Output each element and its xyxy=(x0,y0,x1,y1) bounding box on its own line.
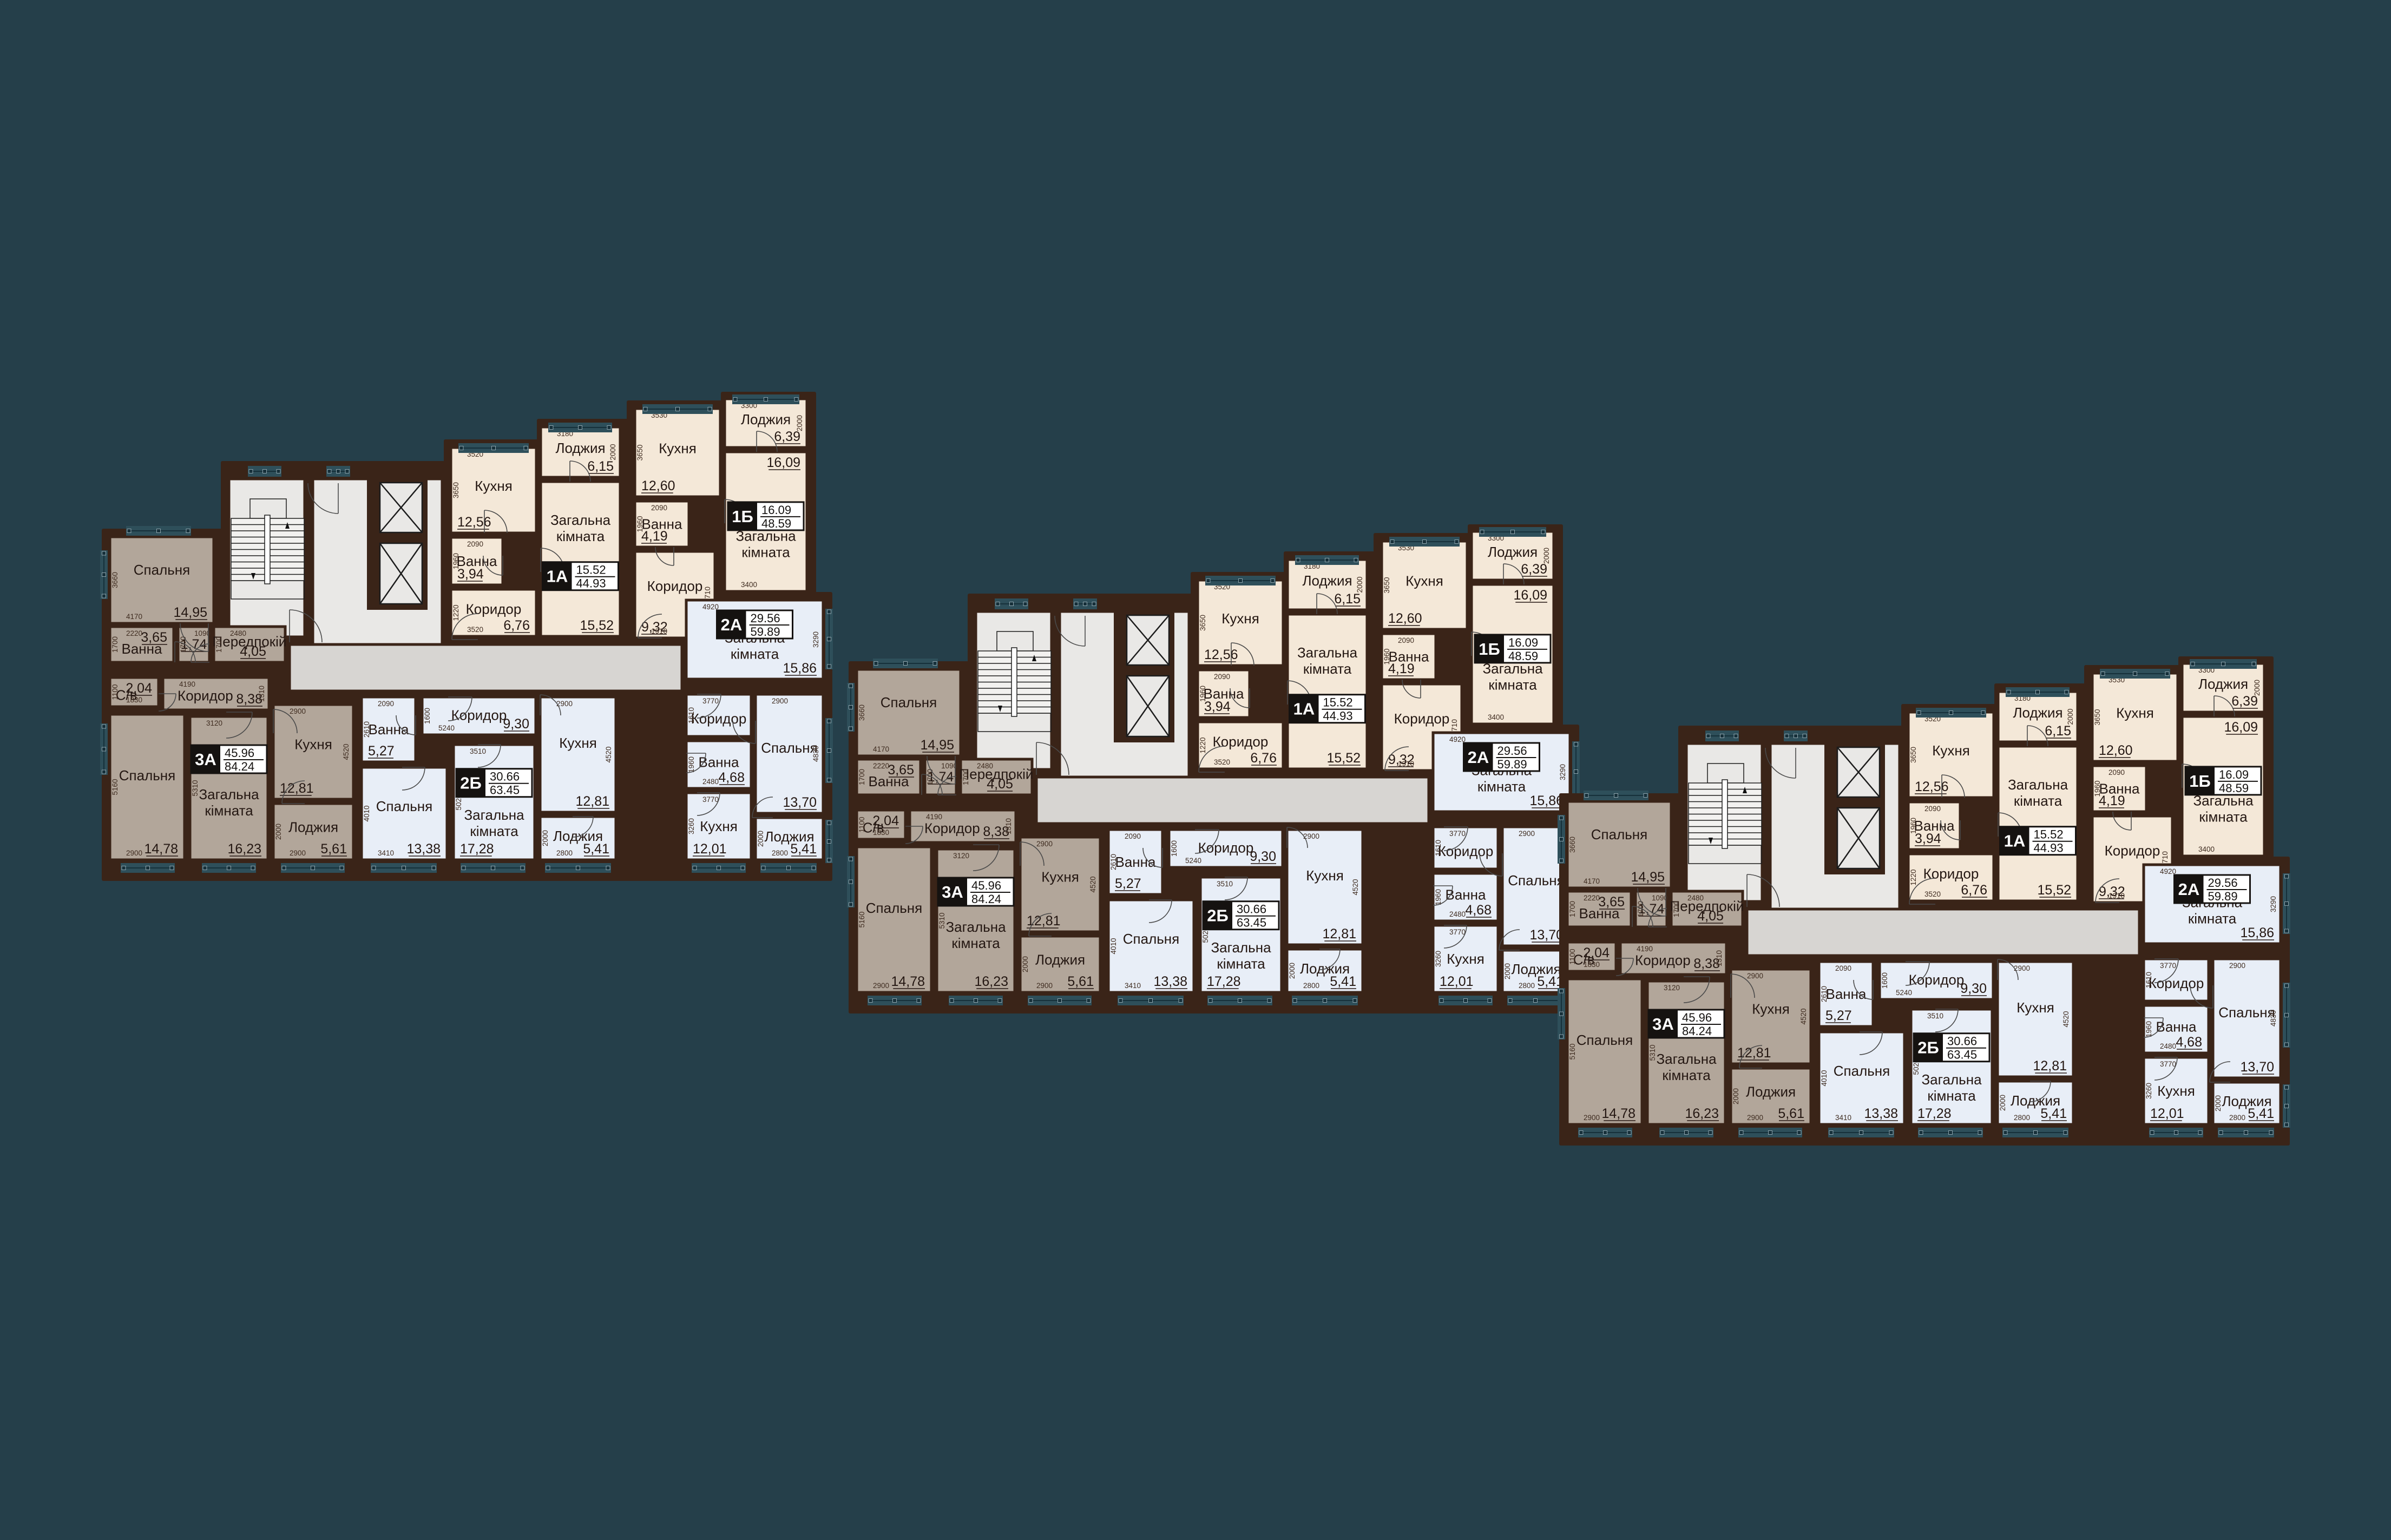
room-area: 12,56 xyxy=(457,515,491,530)
dimension-label: 2090 xyxy=(2108,768,2125,776)
window-post xyxy=(1534,999,1538,1003)
window-post xyxy=(402,866,406,870)
window-post xyxy=(1978,1131,1982,1135)
dimension-label: 3770 xyxy=(1449,830,1466,838)
window-post xyxy=(1585,794,1588,798)
room-label: Спальня xyxy=(1834,1063,1890,1079)
window-post xyxy=(521,866,524,870)
window-post xyxy=(849,903,853,906)
dimension-label: 3120 xyxy=(953,852,969,860)
room-label: Коридор xyxy=(691,710,747,727)
badge-total-area: 63.45 xyxy=(1237,916,1266,930)
dimension-label: 3120 xyxy=(206,719,222,727)
window-post xyxy=(102,770,106,774)
dimension-label: 2000 xyxy=(2214,1095,2222,1111)
room-label: Спальня xyxy=(761,740,817,756)
apartment-badge-1А: 1А15.5244.93 xyxy=(1290,695,1365,723)
room-label: Лоджия xyxy=(2013,705,2062,721)
window-post xyxy=(1541,530,1545,534)
window-post xyxy=(1981,711,1985,715)
room-label: Коридор xyxy=(1438,843,1494,859)
room-label: Коридор xyxy=(1909,972,1965,988)
window-post xyxy=(372,866,376,870)
room-area: 2,04 xyxy=(126,681,152,696)
window-post xyxy=(282,866,286,870)
room-area: 12,81 xyxy=(2033,1058,2067,1074)
room-area: 16,09 xyxy=(2224,720,2258,735)
room-area: 4,05 xyxy=(1697,909,1724,924)
window-post xyxy=(2222,662,2225,666)
dimension-label: 2090 xyxy=(467,540,483,548)
dimension-label: 4520 xyxy=(1351,879,1359,895)
window-post xyxy=(2219,1131,2223,1135)
room-label: кімната xyxy=(556,528,605,544)
window-post xyxy=(251,866,255,870)
dimension-label: 1960 xyxy=(452,553,460,569)
window-post xyxy=(1803,734,1807,738)
room-a1-living xyxy=(541,482,620,636)
window-post xyxy=(524,446,528,450)
window-post xyxy=(1734,734,1738,738)
badge-total-area: 48.59 xyxy=(761,517,791,530)
window-post xyxy=(1739,1131,1743,1135)
window-post xyxy=(157,529,161,533)
room-label: Коридор xyxy=(1635,952,1691,969)
badge-living-area: 16.09 xyxy=(2219,768,2249,781)
window-post xyxy=(1238,999,1242,1003)
room-area: 13,38 xyxy=(406,841,441,857)
window-post xyxy=(311,866,315,870)
room-label: Коридор xyxy=(1198,840,1254,856)
badge-type: 1А xyxy=(2004,832,2026,851)
window-post xyxy=(2175,1131,2178,1135)
badge-living-area: 45.96 xyxy=(971,879,1001,892)
room-label: Спальня xyxy=(881,694,937,710)
window-post xyxy=(1206,579,1210,583)
dimension-label: 4520 xyxy=(1799,1008,1808,1024)
dimension-label: 2000 xyxy=(609,444,617,460)
dimension-label: 3650 xyxy=(1909,747,1917,763)
badge-type: 2Б xyxy=(1917,1038,1939,1057)
badge-living-area: 16.09 xyxy=(761,503,791,517)
window-post xyxy=(102,747,106,751)
room-area: 17,28 xyxy=(460,841,494,857)
window-post xyxy=(1239,579,1243,583)
window-post xyxy=(904,662,908,666)
window-post xyxy=(1706,734,1710,738)
room-area: 17,28 xyxy=(1207,974,1241,989)
window-post xyxy=(643,407,647,411)
room-area: 5,41 xyxy=(790,841,817,857)
dimension-label: 2800 xyxy=(772,849,788,857)
dimension-label: 3520 xyxy=(467,626,483,634)
dimension-label: 3650 xyxy=(2093,709,2101,725)
window-post xyxy=(1179,999,1183,1003)
room-area: 12,81 xyxy=(280,781,314,796)
window-post xyxy=(849,857,853,861)
room-label: Лоджия xyxy=(288,819,338,835)
room-label: кімната xyxy=(1303,661,1352,677)
badge-total-area: 59.89 xyxy=(751,625,780,639)
room-area: 13,38 xyxy=(1864,1106,1898,1121)
room-label: Спальня xyxy=(1591,826,1647,843)
badge-total-area: 84.24 xyxy=(1682,1024,1712,1038)
dimension-label: 2900 xyxy=(290,849,306,857)
room-label: кімната xyxy=(1927,1088,1976,1104)
dimension-label: 3650 xyxy=(1383,577,1391,593)
room-area: 5,41 xyxy=(2040,1106,2067,1121)
room-label: кімната xyxy=(741,544,790,560)
dimension-label: 2000 xyxy=(1732,1088,1740,1104)
window-post xyxy=(1440,999,1443,1003)
window-post xyxy=(1860,1131,1863,1135)
window-post xyxy=(1560,1035,1564,1038)
floor-plan-canvas: Спальня14,9541703660Ванна3,65222017001,7… xyxy=(0,0,2391,1540)
room-label: Загальна xyxy=(2008,776,2068,793)
dimension-label: 1960 xyxy=(1199,686,1207,702)
room-label: Загальна xyxy=(945,919,1006,935)
window-post xyxy=(2285,1043,2289,1047)
window-post xyxy=(2244,1131,2248,1135)
dimension-label: 5160 xyxy=(858,911,866,927)
window-post xyxy=(337,470,340,473)
badge-total-area: 59.89 xyxy=(2208,890,2238,903)
window-post xyxy=(1685,1131,1689,1135)
room-area: 4,19 xyxy=(2099,793,2125,808)
badge-type: 2Б xyxy=(1207,906,1229,925)
room-area: 6,76 xyxy=(503,618,530,633)
dimension-label: 5310 xyxy=(1648,1044,1657,1061)
dimension-label: 5310 xyxy=(191,780,199,796)
window-post xyxy=(2285,1085,2289,1089)
dimension-label: 1220 xyxy=(1199,737,1207,753)
dimension-label: 2480 xyxy=(977,762,993,770)
window-post xyxy=(827,610,831,614)
window-post xyxy=(546,866,550,870)
corridor-hall xyxy=(290,644,682,691)
apartment-badge-1Б: 1Б16.0948.59 xyxy=(728,502,804,530)
dimension-label: 2090 xyxy=(651,504,667,512)
dimension-label: 1960 xyxy=(636,516,644,532)
window-post xyxy=(462,866,465,870)
building-plan-section-2: Спальня14,9541703660Ванна3,65222017001,7… xyxy=(846,526,1580,1013)
window-post xyxy=(2269,1131,2273,1135)
window-post xyxy=(1029,999,1033,1003)
room-area: 14,95 xyxy=(920,738,954,753)
badge-total-area: 63.45 xyxy=(1947,1048,1977,1062)
window-post xyxy=(2036,690,2040,694)
dimension-label: 2800 xyxy=(556,849,573,857)
room-area: 12,60 xyxy=(2099,743,2133,758)
room-area: 15,52 xyxy=(580,618,614,633)
room-area: 14,78 xyxy=(891,974,925,989)
window-post xyxy=(1455,540,1459,544)
room-label: Лоджия xyxy=(1302,572,1352,589)
window-post xyxy=(1325,558,1329,562)
apartment-badge-2А: 2А29.5659.89 xyxy=(1464,743,1540,771)
window-post xyxy=(2285,1104,2289,1108)
room-label: Спальня xyxy=(866,900,922,916)
window-post xyxy=(2285,929,2289,933)
window-post xyxy=(2165,672,2169,676)
window-post xyxy=(1560,859,1564,863)
room-label: Ванна xyxy=(1115,854,1157,870)
dimension-label: 3410 xyxy=(1125,982,1141,990)
dimension-label: 4010 xyxy=(363,805,371,821)
room-label: Лоджия xyxy=(1035,952,1085,968)
dimension-label: 2000 xyxy=(274,824,283,840)
window-post xyxy=(1794,734,1798,738)
dimension-label: 2800 xyxy=(1303,982,1319,990)
window-post xyxy=(812,866,816,870)
room-label: Кухня xyxy=(2157,1083,2195,1099)
room-area: 16,23 xyxy=(974,974,1008,989)
room-area: 14,78 xyxy=(144,841,178,857)
window-post xyxy=(933,662,937,666)
badge-living-area: 15.52 xyxy=(2034,828,2064,841)
window-post xyxy=(827,664,831,668)
window-post xyxy=(1644,794,1647,798)
window-post xyxy=(227,866,231,870)
dimension-label: 1830 xyxy=(873,828,889,837)
window-post xyxy=(764,398,768,402)
room-area: 12,81 xyxy=(1737,1045,1771,1061)
room-a3-bedroom-2 xyxy=(857,847,931,992)
apartment-badge-3А: 3А45.9684.24 xyxy=(191,745,267,773)
room-area: 5,61 xyxy=(1067,974,1094,989)
dimension-label: 3520 xyxy=(1214,758,1230,766)
room-area: 5,27 xyxy=(368,743,395,759)
dimension-label: 1700 xyxy=(111,636,119,653)
window-post xyxy=(1293,999,1297,1003)
badge-total-area: 44.93 xyxy=(2034,841,2064,855)
window-post xyxy=(1354,558,1358,562)
window-post xyxy=(676,407,680,411)
room-label: Лоджия xyxy=(2198,676,2248,692)
room-label: кімната xyxy=(2199,808,2248,825)
window-post xyxy=(2004,1131,2007,1135)
room-label: Лоджия xyxy=(1488,544,1538,560)
window-post xyxy=(827,749,831,753)
window-post xyxy=(2285,902,2289,906)
dimension-label: 2900 xyxy=(290,707,306,715)
room-area: 15,52 xyxy=(1326,751,1361,766)
window-post xyxy=(2007,690,2011,694)
dimension-label: 4010 xyxy=(1820,1070,1828,1086)
dimension-label: 3510 xyxy=(1217,880,1233,888)
room-area: 12,60 xyxy=(641,478,675,493)
room-label: Кухня xyxy=(1306,867,1344,884)
dimension-label: 4520 xyxy=(342,743,350,760)
dimension-label: 2000 xyxy=(796,415,804,431)
badge-living-area: 15.52 xyxy=(576,563,606,577)
dimension-label: 3650 xyxy=(1199,615,1207,631)
window-post xyxy=(327,470,331,473)
dimension-label: 1960 xyxy=(2145,1021,2153,1037)
room-label: Кухня xyxy=(475,478,513,494)
room-area: 17,28 xyxy=(1917,1106,1952,1121)
badge-type: 2А xyxy=(1468,748,1489,767)
dimension-label: 3260 xyxy=(1434,951,1442,967)
dimension-label: 3120 xyxy=(1664,984,1680,992)
dimension-label: 1910 xyxy=(651,627,667,635)
room-area: 4,68 xyxy=(1465,903,1492,918)
dimension-label: 3770 xyxy=(2160,1060,2176,1068)
window-post xyxy=(996,602,1000,606)
room-label: Кухня xyxy=(1752,1001,1790,1017)
room-area: 6,15 xyxy=(2045,723,2071,739)
window-post xyxy=(1058,999,1062,1003)
dimension-label: 1960 xyxy=(1434,889,1442,905)
room-area: 16,23 xyxy=(227,841,261,857)
room-area: 14,78 xyxy=(1601,1106,1635,1121)
dimension-label: 1830 xyxy=(1584,960,1600,969)
window-post xyxy=(1083,602,1087,606)
dimension-label: 2090 xyxy=(1398,636,1414,644)
dimension-label: 2900 xyxy=(126,849,142,857)
dimension-label: 2900 xyxy=(1036,982,1053,990)
room-a1-living xyxy=(1998,746,2078,901)
window-post xyxy=(102,725,106,728)
room-area: 12,81 xyxy=(1027,913,1061,929)
window-post xyxy=(849,727,853,730)
window-post xyxy=(893,999,897,1003)
window-post xyxy=(1720,734,1724,738)
window-post xyxy=(849,706,853,709)
room-area: 15,52 xyxy=(2037,883,2071,898)
dimension-label: 4830 xyxy=(812,746,820,762)
dimension-label: 3290 xyxy=(2269,896,2277,912)
dimension-label: 2220 xyxy=(126,629,142,637)
dimension-label: 2900 xyxy=(1747,1114,1763,1122)
window-post xyxy=(917,999,921,1003)
room-label: Коридор xyxy=(466,601,522,617)
dimension-label: 5240 xyxy=(1185,857,1201,865)
badge-living-area: 30.66 xyxy=(490,770,520,784)
dimension-label: 2800 xyxy=(1519,982,1535,990)
room-label: кімната xyxy=(1217,956,1265,972)
dimension-label: 1610 xyxy=(1434,840,1442,856)
badge-living-area: 30.66 xyxy=(1947,1035,1977,1048)
dimension-label: 2900 xyxy=(1036,840,1053,848)
room-label: Коридор xyxy=(1213,734,1269,750)
window-post xyxy=(576,866,580,870)
apartment-badge-3А: 3А45.9684.24 xyxy=(938,878,1014,906)
room-label: Кухня xyxy=(1932,742,1970,759)
dimension-label: 1700 xyxy=(926,769,934,785)
room-label: Спальня xyxy=(119,767,175,784)
dimension-label: 2000 xyxy=(1021,956,1029,972)
window-post xyxy=(1560,816,1564,820)
room-area: 12,01 xyxy=(693,841,727,857)
room-area: 4,05 xyxy=(987,776,1013,792)
window-post xyxy=(459,446,463,450)
dimension-label: 4190 xyxy=(926,813,942,821)
window-post xyxy=(1390,540,1394,544)
window-post xyxy=(794,398,798,402)
room-area: 12,01 xyxy=(1440,974,1474,989)
window-post xyxy=(874,662,878,666)
room-label: кімната xyxy=(1662,1067,1711,1083)
dimension-label: 1700 xyxy=(215,636,223,653)
dimension-label: 1700 xyxy=(858,769,866,785)
window-post xyxy=(787,866,791,870)
badge-living-area: 29.56 xyxy=(1497,744,1527,758)
dimension-label: 1910 xyxy=(1398,760,1414,768)
badge-living-area: 29.56 xyxy=(2208,876,2238,890)
window-post xyxy=(1829,1131,1833,1135)
room-area: 3,94 xyxy=(1915,831,1941,846)
dimension-label: 2090 xyxy=(378,700,394,708)
window-post xyxy=(127,529,131,533)
room-label: Кухня xyxy=(1405,572,1443,589)
room-area: 14,95 xyxy=(1631,870,1665,885)
window-post xyxy=(146,866,150,870)
stair-divider xyxy=(1722,780,1727,848)
window-post xyxy=(869,999,872,1003)
window-post xyxy=(1709,1131,1712,1135)
badge-type: 3А xyxy=(195,750,216,769)
dimension-label: 4170 xyxy=(873,745,889,753)
apartment-badge-1А: 1А15.5244.93 xyxy=(543,562,619,590)
window-post xyxy=(1423,540,1427,544)
room-area: 12,56 xyxy=(1204,647,1238,662)
dimension-label: 1960 xyxy=(2093,780,2101,797)
dimension-label: 1960 xyxy=(687,756,695,773)
window-post xyxy=(2191,662,2195,666)
window-post xyxy=(432,866,436,870)
window-post xyxy=(492,446,496,450)
dimension-label: 2480 xyxy=(2160,1042,2176,1050)
window-post xyxy=(2150,1131,2154,1135)
dimension-label: 3650 xyxy=(636,444,644,460)
window-post xyxy=(607,426,611,430)
window-post xyxy=(827,778,831,782)
dimension-label: 2480 xyxy=(702,778,719,786)
dimension-label: 3770 xyxy=(702,697,719,705)
dimension-label: 2610 xyxy=(1820,986,1828,1002)
dimension-label: 1700 xyxy=(1637,901,1645,917)
window-post xyxy=(827,637,831,641)
window-post xyxy=(741,866,745,870)
badge-total-area: 44.93 xyxy=(1323,709,1353,723)
window-post xyxy=(827,840,831,844)
room-label: Коридор xyxy=(451,707,507,723)
dimension-label: 3510 xyxy=(470,747,486,755)
dimension-label: 3400 xyxy=(2198,845,2215,853)
room-label: кімната xyxy=(470,823,518,839)
dimension-label: 1600 xyxy=(1170,840,1178,857)
room-label: Загальна xyxy=(464,807,524,823)
dimension-label: 2900 xyxy=(1747,972,1763,980)
dimension-label: 1610 xyxy=(2145,972,2153,988)
room-area: 2,04 xyxy=(1583,945,1610,960)
badge-type: 3А xyxy=(1652,1015,1674,1034)
dimension-label: 1220 xyxy=(1909,869,1917,885)
room-label: Загальна xyxy=(1921,1071,1982,1088)
dimension-label: 1700 xyxy=(962,769,970,785)
badge-living-area: 15.52 xyxy=(1323,696,1353,709)
room-area: 5,27 xyxy=(1115,876,1141,891)
dimension-label: 3400 xyxy=(1488,713,1504,721)
room-label: Кухня xyxy=(1041,869,1079,885)
window-post xyxy=(1949,1131,1953,1135)
room-label: кімната xyxy=(1488,676,1537,693)
window-post xyxy=(2285,984,2289,988)
building-plan-section-1: Спальня14,9541703660Ванна3,65222017001,7… xyxy=(99,393,833,880)
room-area: 3,65 xyxy=(888,762,914,778)
room-label: Кухня xyxy=(700,818,738,834)
